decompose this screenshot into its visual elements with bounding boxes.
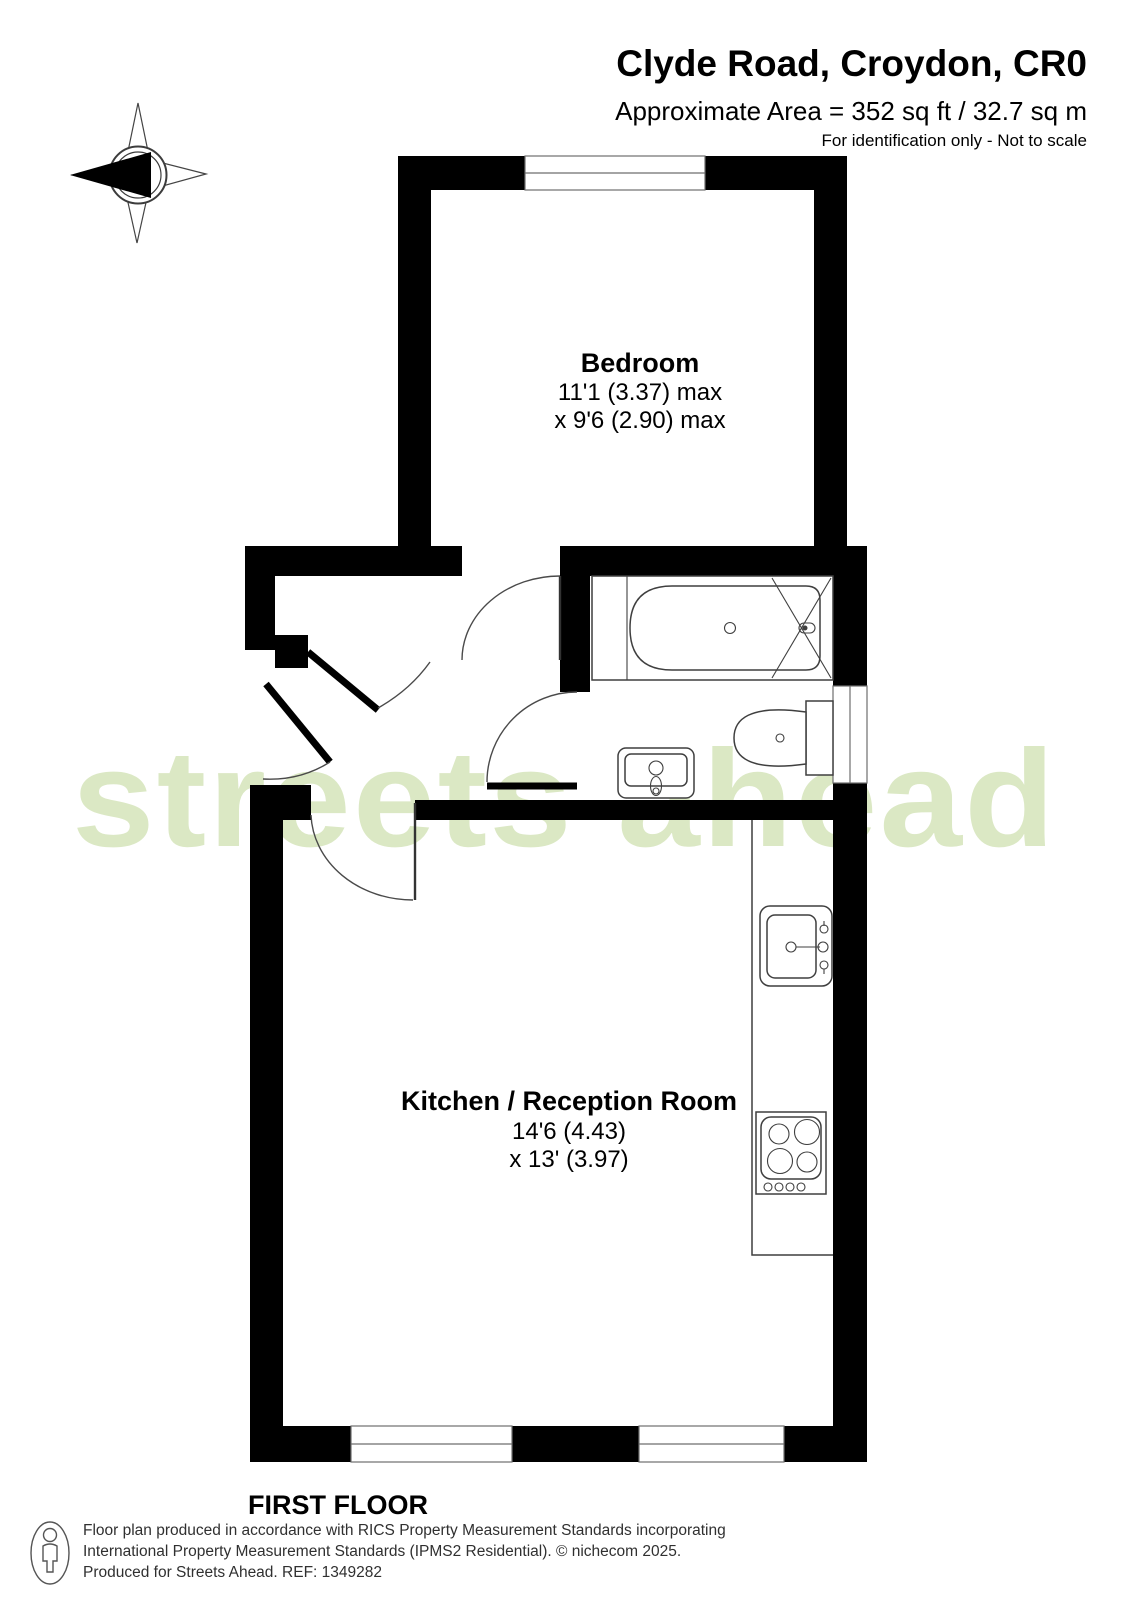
header: Clyde Road, Croydon, CR0 Approximate Are… — [615, 43, 1087, 150]
hob-icon — [756, 1112, 826, 1194]
kitchen-sink-icon — [760, 906, 832, 986]
bathtub-icon — [592, 576, 833, 680]
window-bedroom — [525, 156, 705, 190]
bedroom-dim2: x 9'6 (2.90) max — [554, 407, 725, 434]
floorplan-container: streets ahead Clyde Road, Croydon, CR0 A… — [0, 0, 1131, 1599]
door-bedroom — [462, 576, 560, 660]
approximate-area: Approximate Area = 352 sq ft / 32.7 sq m — [615, 96, 1087, 126]
compass-icon: N — [70, 103, 206, 243]
window-kitchen-left — [351, 1426, 512, 1462]
page-title: Clyde Road, Croydon, CR0 — [616, 43, 1087, 84]
floorplan-svg: streets ahead Clyde Road, Croydon, CR0 A… — [0, 0, 1131, 1599]
kitchen-name: Kitchen / Reception Room — [401, 1086, 737, 1116]
watermark-text: streets ahead — [72, 722, 1057, 876]
window-bathroom — [833, 686, 867, 783]
footer-line-1: Floor plan produced in accordance with R… — [83, 1522, 726, 1539]
person-icon — [31, 1522, 69, 1584]
room-label-kitchen: Kitchen / Reception Room 14'6 (4.43) x 1… — [401, 1086, 737, 1173]
page: { "header": { "title": "Clyde Road, Croy… — [0, 0, 1131, 1599]
window-kitchen-right — [639, 1426, 784, 1462]
floor-label: FIRST FLOOR — [248, 1490, 428, 1520]
kitchen-dim2: x 13' (3.97) — [509, 1146, 628, 1173]
scale-disclaimer: For identification only - Not to scale — [821, 131, 1087, 150]
compass-north-label: N — [120, 164, 156, 187]
room-label-bedroom: Bedroom 11'1 (3.37) max x 9'6 (2.90) max — [554, 348, 725, 434]
bedroom-dim1: 11'1 (3.37) max — [558, 379, 722, 406]
bedroom-name: Bedroom — [581, 348, 700, 378]
footer-line-2: International Property Measurement Stand… — [83, 1543, 681, 1560]
kitchen-dim1: 14'6 (4.43) — [512, 1118, 626, 1145]
footer-line-3: Produced for Streets Ahead. REF: 1349282 — [83, 1564, 382, 1581]
footer: Floor plan produced in accordance with R… — [31, 1522, 726, 1584]
basin-icon — [618, 748, 694, 798]
